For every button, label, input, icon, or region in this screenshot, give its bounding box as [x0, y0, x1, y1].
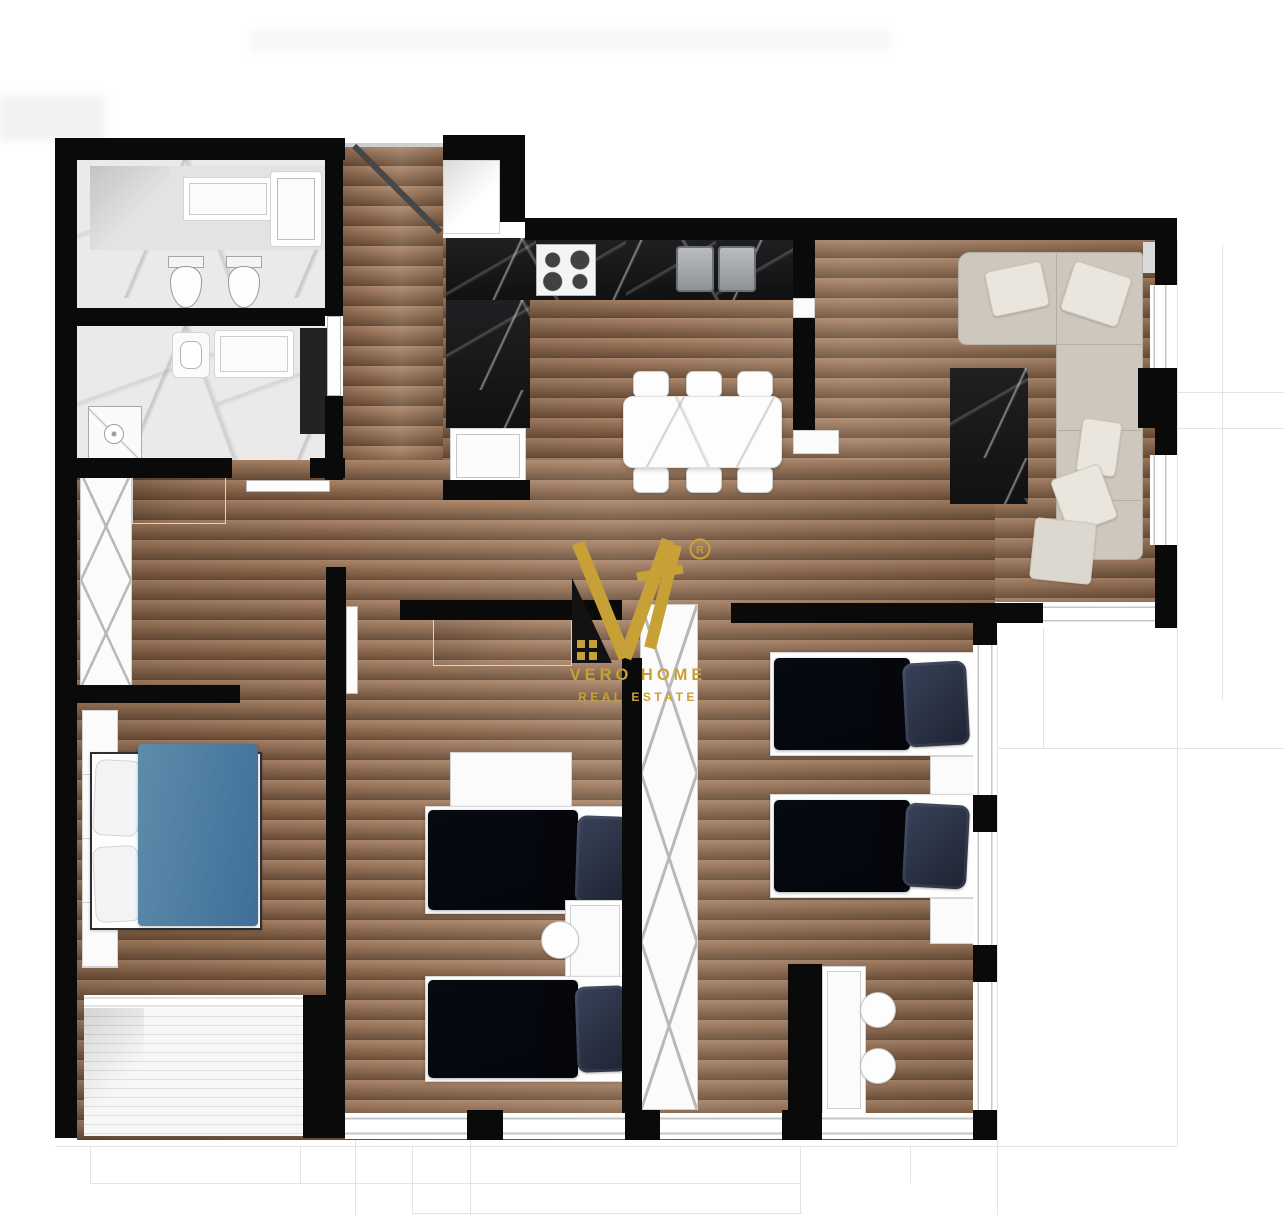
kitchen-sink: [718, 246, 756, 292]
window: [1150, 285, 1170, 368]
kitchen-partition-cabinet: [793, 430, 839, 454]
shower-drain-icon: [104, 424, 124, 444]
dining-chair: [686, 371, 722, 398]
window: [1043, 602, 1155, 626]
wall-segment: [326, 567, 346, 1000]
vanity: [183, 177, 273, 221]
nightstand: [930, 898, 975, 944]
single-bed-pillow: [902, 802, 970, 889]
wall-segment: [1155, 428, 1177, 455]
wall-segment: [782, 1110, 822, 1140]
wall-segment: [443, 480, 530, 500]
entry-storage-niche: [443, 160, 500, 234]
door-leaf-corridor: [327, 316, 341, 396]
wall-segment: [467, 1110, 503, 1140]
wall-segment: [55, 138, 345, 160]
desk-chair: [860, 1048, 896, 1084]
grid-line: [997, 748, 1284, 749]
bathroom-2-counter: [214, 330, 294, 378]
brand-subtitle: REAL ESTATE: [543, 690, 733, 704]
desk-chair: [860, 992, 896, 1028]
bathtub: [270, 171, 322, 247]
wall-segment: [310, 458, 345, 478]
floor-plan-sheet: R VERO HOME REAL ESTATE: [0, 0, 1284, 1217]
balcony-shadow: [84, 1008, 144, 1136]
media-table: [950, 368, 1028, 504]
scan-smudge: [250, 30, 890, 52]
single-bed-duvet: [774, 658, 910, 750]
kitchen-sink: [676, 246, 714, 292]
wall-segment: [77, 685, 240, 703]
kitchen-counter-side: [446, 300, 530, 428]
grid-line: [355, 1140, 356, 1215]
wall-segment: [973, 945, 997, 982]
wall-segment: [325, 160, 343, 316]
grid-line: [910, 1146, 911, 1183]
wall-segment: [793, 318, 815, 430]
wall-segment: [973, 623, 997, 645]
grid-line: [997, 640, 998, 1215]
washbasin-bowl: [180, 341, 202, 369]
wall-niche: [793, 298, 815, 318]
brand-name: VERO HOME: [543, 666, 733, 685]
grid-line: [90, 1183, 800, 1184]
watermark-logo: R VERO HOME REAL ESTATE: [553, 528, 733, 738]
wall-segment: [77, 308, 325, 326]
bedroom2-dresser: [450, 752, 572, 810]
stove: [536, 244, 596, 296]
grid-line: [300, 1146, 301, 1183]
single-bed-duvet: [428, 810, 578, 910]
wall-segment: [525, 218, 1177, 240]
sofa-pouf: [1029, 517, 1097, 585]
wall-segment: [731, 603, 1043, 623]
grid-line: [90, 1146, 91, 1183]
grid-line: [412, 1146, 413, 1213]
wall-segment: [55, 458, 232, 478]
scan-smudge: [0, 95, 105, 141]
wall-segment: [1138, 368, 1177, 428]
wall-segment: [500, 160, 525, 222]
single-bed-pillow: [902, 660, 970, 747]
hall-wardrobe: [80, 472, 132, 688]
wall-segment: [793, 240, 815, 298]
wall-segment: [973, 795, 997, 832]
grid-line: [1177, 392, 1284, 393]
bedroom3-desk: [822, 966, 866, 1114]
grid-line: [1177, 240, 1178, 1145]
grid-line: [470, 1140, 471, 1215]
svg-text:R: R: [696, 545, 704, 557]
grid-line: [55, 1146, 1177, 1147]
grid-line: [1043, 628, 1044, 748]
door-leaf-bedroom: [346, 606, 358, 694]
wall-segment: [625, 1110, 660, 1140]
wall-segment: [973, 1110, 997, 1140]
dining-chair: [737, 466, 773, 493]
wall-segment: [1155, 218, 1177, 285]
wall-segment: [55, 138, 77, 1138]
bed-pillow: [92, 759, 142, 837]
window: [973, 640, 997, 1110]
dining-chair: [686, 466, 722, 493]
double-bed-duvet: [138, 744, 258, 926]
wall-segment: [303, 995, 345, 1138]
single-bed-duvet: [774, 800, 910, 892]
floor-wood-entry-corridor: [343, 146, 443, 480]
dining-chair: [633, 466, 669, 493]
wall-segment: [443, 135, 525, 160]
bathroom-shadow: [90, 166, 170, 250]
grid-line: [800, 1146, 801, 1213]
dining-chair: [737, 371, 773, 398]
window: [1150, 455, 1170, 545]
wall-segment: [1155, 545, 1177, 628]
bed-pillow: [92, 845, 142, 923]
sofa-seam: [1056, 254, 1057, 344]
door-leaf-bathroom: [246, 480, 330, 492]
grid-line: [1222, 245, 1223, 700]
nightstand: [930, 756, 975, 796]
desk-chair: [541, 921, 579, 959]
sink-cabinet: [450, 428, 526, 484]
grid-line: [1177, 428, 1284, 429]
brand-monogram-icon: R: [553, 528, 723, 738]
dining-table: [623, 396, 782, 468]
single-bed-duvet: [428, 980, 578, 1078]
balcony-railing: [84, 995, 306, 1009]
window-sill: [1143, 242, 1155, 273]
dining-chair: [633, 371, 669, 398]
hall-closet: [132, 472, 226, 524]
